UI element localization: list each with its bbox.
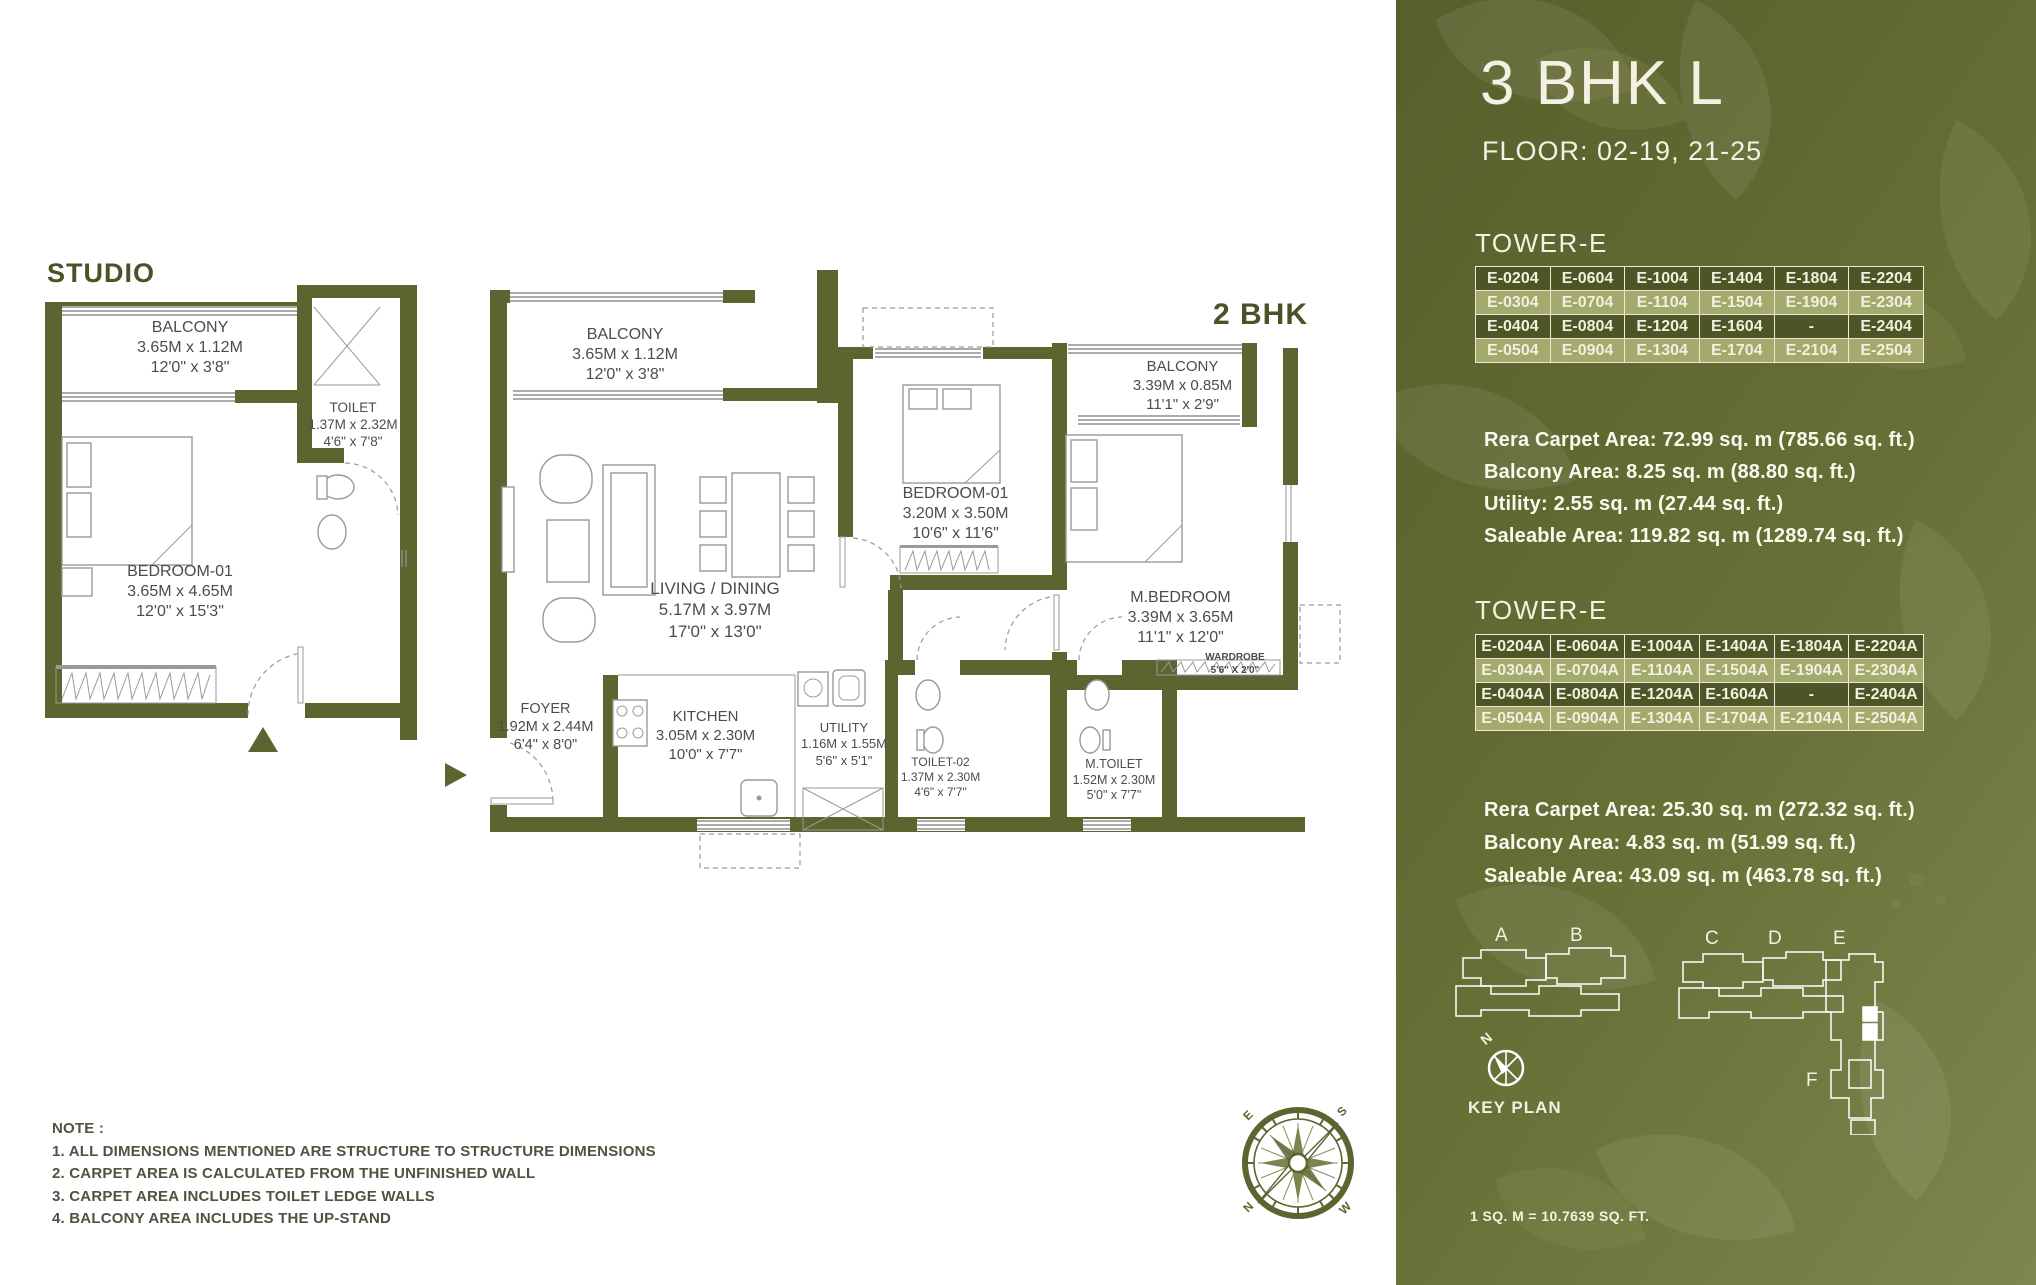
studio-entry-arrow: [248, 727, 278, 752]
keyplan-label-b: B: [1570, 925, 1584, 947]
area-line: Balcony Area: 4.83 sq. m (51.99 sq. ft.): [1484, 827, 1915, 860]
unit-cell: E-0504A: [1476, 707, 1551, 731]
unit-cell: -: [1774, 683, 1849, 707]
area-line: Saleable Area: 43.09 sq. m (463.78 sq. f…: [1484, 860, 1915, 893]
tower1-units-table: E-0204E-0604E-1004E-1404E-1804E-2204E-03…: [1475, 266, 1924, 363]
unit-cell: E-2204: [1849, 267, 1924, 291]
room-label-bhk2-mbedroom: M.BEDROOM 3.39M x 3.65M 11'1" x 12'0": [1078, 588, 1283, 648]
area-line: Saleable Area: 119.82 sq. m (1289.74 sq.…: [1484, 520, 1915, 552]
unit-cell: E-1104A: [1625, 659, 1700, 683]
unit-cell: E-2104: [1774, 339, 1849, 363]
unit-cell: E-0704A: [1550, 659, 1625, 683]
unit-cell: E-0204A: [1476, 635, 1551, 659]
tower-table-row: E-0304AE-0704AE-1104AE-1504AE-1904AE-230…: [1476, 659, 1924, 683]
unit-cell: E-2204A: [1849, 635, 1924, 659]
bhk2-bedroom1-furniture: [900, 385, 1000, 573]
floor-range: FLOOR: 02-19, 21-25: [1482, 136, 1762, 167]
unit-cell: E-1904: [1774, 291, 1849, 315]
unit-cell: E-0304: [1476, 291, 1551, 315]
unit-cell: E-1504: [1699, 291, 1774, 315]
room-label-studio-toilet: TOILET 1.37M x 2.32M 4'6" x 7'8": [300, 400, 406, 451]
room-label-bhk2-bedroom1: BEDROOM-01 3.20M x 3.50M 10'6" x 11'6": [858, 484, 1053, 544]
note-heading: NOTE :: [52, 1118, 656, 1141]
room-label-bhk2-balcony1: BALCONY 3.65M x 1.12M 12'0" x 3'8": [520, 325, 730, 385]
unit-cell: E-2304: [1849, 291, 1924, 315]
area-line: Rera Carpet Area: 25.30 sq. m (272.32 sq…: [1484, 794, 1915, 827]
room-label-bhk2-living: LIVING / DINING 5.17M x 3.97M 17'0" x 13…: [595, 578, 835, 642]
unit-cell: E-2104A: [1774, 707, 1849, 731]
unit-cell: E-1604: [1699, 315, 1774, 339]
unit-cell: E-0404A: [1476, 683, 1551, 707]
unit-cell: E-1004A: [1625, 635, 1700, 659]
area-line: Rera Carpet Area: 72.99 sq. m (785.66 sq…: [1484, 424, 1915, 456]
keyplan-label-d: D: [1768, 928, 1783, 950]
unit-cell: E-0804A: [1550, 683, 1625, 707]
keyplan-caption: KEY PLAN: [1468, 1098, 1562, 1118]
svg-text:N: N: [1477, 1029, 1495, 1048]
room-label-bhk2-wardrobe: WARDROBE 5'6" X 2'0": [1192, 652, 1278, 677]
svg-text:N: N: [1240, 1199, 1256, 1215]
note-item: 4. BALCONY AREA INCLUDES THE UP-STAND: [52, 1208, 656, 1231]
room-label-bhk2-foyer: FOYER 1.92M x 2.44M 6'4" x 8'0": [483, 700, 608, 754]
unit-cell: E-1204A: [1625, 683, 1700, 707]
tower-table-row: E-0404E-0804E-1204E-1604-E-2404: [1476, 315, 1924, 339]
note-item: 1. ALL DIMENSIONS MENTIONED ARE STRUCTUR…: [52, 1141, 656, 1164]
keyplan-highlight-units: [1863, 1007, 1877, 1040]
tower-table-row: E-0204E-0604E-1004E-1404E-1804E-2204: [1476, 267, 1924, 291]
unit-cell: E-0604: [1550, 267, 1625, 291]
info-panel: 3 BHK L FLOOR: 02-19, 21-25 TOWER-E E-02…: [1396, 0, 2036, 1285]
unit-cell: E-0704: [1550, 291, 1625, 315]
unit-cell: E-0804: [1550, 315, 1625, 339]
note-block: NOTE : 1. ALL DIMENSIONS MENTIONED ARE S…: [52, 1118, 656, 1231]
unit-cell: E-1504A: [1699, 659, 1774, 683]
unit-cell: E-2404A: [1849, 683, 1924, 707]
svg-text:S: S: [1334, 1104, 1350, 1120]
unit-cell: -: [1774, 315, 1849, 339]
unit-cell: E-1304A: [1625, 707, 1700, 731]
room-label-bhk2-mtoilet: M.TOILET 1.52M x 2.30M 5'0" x 7'7": [1058, 757, 1170, 804]
keyplan-label-a: A: [1495, 925, 1509, 947]
keyplan-north-compass: N: [1474, 1028, 1534, 1092]
unit-cell: E-0404: [1476, 315, 1551, 339]
floorplan-brochure-page: STUDIO: [0, 0, 2036, 1285]
tower1-areas: Rera Carpet Area: 72.99 sq. m (785.66 sq…: [1484, 424, 1915, 552]
tower-table-row: E-0404AE-0804AE-1204AE-1604A-E-2404A: [1476, 683, 1924, 707]
unit-cell: E-0504: [1476, 339, 1551, 363]
svg-text:E: E: [1240, 1108, 1256, 1124]
room-label-studio-balcony: BALCONY 3.65M x 1.12M 12'0" x 3'8": [90, 318, 290, 378]
area-line: Utility: 2.55 sq. m (27.44 sq. ft.): [1484, 488, 1915, 520]
unit-cell: E-1904A: [1774, 659, 1849, 683]
room-label-studio-bedroom: BEDROOM-01 3.65M x 4.65M 12'0" x 15'3": [75, 562, 285, 622]
unit-cell: E-0904: [1550, 339, 1625, 363]
unit-cell: E-1804: [1774, 267, 1849, 291]
tower2-units-table: E-0204AE-0604AE-1004AE-1404AE-1804AE-220…: [1475, 634, 1924, 731]
unit-cell: E-1304: [1625, 339, 1700, 363]
tower-table-row: E-0204AE-0604AE-1004AE-1404AE-1804AE-220…: [1476, 635, 1924, 659]
unit-type-title: 3 BHK L: [1480, 48, 1725, 119]
keyplan-label-c: C: [1705, 928, 1720, 950]
unit-cell: E-1604A: [1699, 683, 1774, 707]
note-item: 3. CARPET AREA INCLUDES TOILET LEDGE WAL…: [52, 1186, 656, 1209]
bhk2-entry-arrow: [445, 763, 467, 787]
conversion-note: 1 SQ. M = 10.7639 SQ. FT.: [1470, 1208, 1649, 1224]
unit-cell: E-0304A: [1476, 659, 1551, 683]
unit-cell: E-2504A: [1849, 707, 1924, 731]
unit-cell: E-1804A: [1774, 635, 1849, 659]
unit-cell: E-2304A: [1849, 659, 1924, 683]
tower-table-row: E-0304E-0704E-1104E-1504E-1904E-2304: [1476, 291, 1924, 315]
room-label-bhk2-balcony2: BALCONY 3.39M x 0.85M 11'1" x 2'9": [1085, 358, 1280, 414]
tower1-heading: TOWER-E: [1475, 228, 1608, 259]
unit-cell: E-1004: [1625, 267, 1700, 291]
unit-cell: E-1204: [1625, 315, 1700, 339]
tower2-heading: TOWER-E: [1475, 595, 1608, 626]
svg-text:W: W: [1336, 1199, 1354, 1217]
tower-table-row: E-0504E-0904E-1304E-1704E-2104E-2504: [1476, 339, 1924, 363]
unit-cell: E-0604A: [1550, 635, 1625, 659]
keyplan-cluster-cdef: [1679, 952, 1883, 1135]
unit-cell: E-1704A: [1699, 707, 1774, 731]
area-line: Balcony Area: 8.25 sq. m (88.80 sq. ft.): [1484, 456, 1915, 488]
unit-cell: E-1104: [1625, 291, 1700, 315]
unit-cell: E-2404: [1849, 315, 1924, 339]
unit-cell: E-0204: [1476, 267, 1551, 291]
unit-cell: E-1404A: [1699, 635, 1774, 659]
keyplan-label-f: F: [1806, 1070, 1819, 1092]
unit-cell: E-1404: [1699, 267, 1774, 291]
tower2-areas: Rera Carpet Area: 25.30 sq. m (272.32 sq…: [1484, 794, 1915, 893]
room-label-bhk2-toilet2: TOILET-02 1.37M x 2.30M 4'6" x 7'7": [893, 755, 988, 800]
keyplan-label-e: E: [1833, 928, 1847, 950]
unit-cell: E-2504: [1849, 339, 1924, 363]
room-label-bhk2-kitchen: KITCHEN 3.05M x 2.30M 10'0" x 7'7": [638, 708, 773, 764]
bhk2-toilet-fixtures: [916, 680, 1110, 753]
compass-rose: N E S W: [1238, 1103, 1358, 1223]
unit-cell: E-1704: [1699, 339, 1774, 363]
tower-table-row: E-0504AE-0904AE-1304AE-1704AE-2104AE-250…: [1476, 707, 1924, 731]
keyplan-cluster-ab: [1456, 948, 1625, 1016]
note-item: 2. CARPET AREA IS CALCULATED FROM THE UN…: [52, 1163, 656, 1186]
unit-cell: E-0904A: [1550, 707, 1625, 731]
room-label-bhk2-utility: UTILITY 1.16M x 1.55M 5'6" x 5'1": [790, 720, 898, 769]
